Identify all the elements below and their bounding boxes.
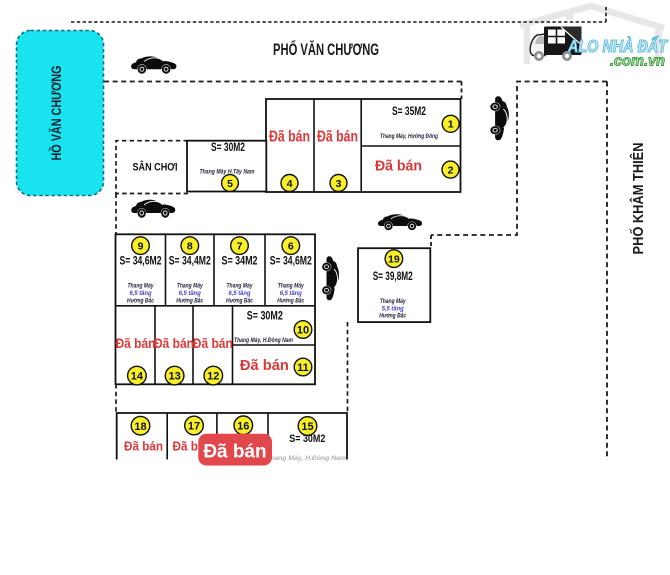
svg-text:S= 30M2: S= 30M2 xyxy=(247,311,283,323)
svg-text:Hướng Bắc: Hướng Bắc xyxy=(127,296,154,305)
svg-text:Đã bán: Đã bán xyxy=(269,129,310,146)
svg-text:Đã bán: Đã bán xyxy=(116,336,156,351)
svg-text:15: 15 xyxy=(301,421,313,433)
svg-text:1: 1 xyxy=(448,119,454,131)
svg-text:Thang Máy: Thang Máy xyxy=(278,283,304,290)
svg-text:Đã bán: Đã bán xyxy=(317,129,358,146)
svg-text:10: 10 xyxy=(297,325,309,337)
svg-text:Hướng Bắc: Hướng Bắc xyxy=(277,296,304,305)
svg-text:6: 6 xyxy=(288,240,294,252)
svg-text:HỒ VĂN CHƯƠNG: HỒ VĂN CHƯƠNG xyxy=(47,65,64,160)
svg-text:8: 8 xyxy=(187,240,193,252)
svg-text:Thang Máy: Thang Máy xyxy=(128,283,154,290)
svg-text:6,5 tầng: 6,5 tầng xyxy=(130,288,152,297)
svg-text:Thang Máy: Thang Máy xyxy=(227,283,253,290)
svg-text:3: 3 xyxy=(336,178,342,190)
svg-text:Hướng Bắc: Hướng Bắc xyxy=(379,311,406,320)
svg-text:Hướng Bắc: Hướng Bắc xyxy=(176,296,203,305)
svg-text:2: 2 xyxy=(448,165,454,177)
svg-text:Thang Máy: Thang Máy xyxy=(177,283,203,290)
svg-text:SÂN CHƠI: SÂN CHƠI xyxy=(133,161,178,174)
svg-text:Đã bán: Đã bán xyxy=(193,336,233,351)
svg-text:S= 39,8M2: S= 39,8M2 xyxy=(373,271,413,283)
svg-text:Thang Máy, Hướng Đông: Thang Máy, Hướng Đông xyxy=(380,133,438,140)
svg-text:Hướng Bắc: Hướng Bắc xyxy=(226,296,253,305)
svg-text:S= 35M2: S= 35M2 xyxy=(392,106,426,118)
svg-text:Thang Máy: Thang Máy xyxy=(380,298,406,305)
svg-text:S= 34,4M2: S= 34,4M2 xyxy=(169,256,211,268)
svg-text:9: 9 xyxy=(138,240,144,252)
svg-text:S= 34M2: S= 34M2 xyxy=(222,256,258,268)
svg-text:11: 11 xyxy=(297,362,309,374)
svg-text:Đã bán: Đã bán xyxy=(375,158,422,175)
svg-text:13: 13 xyxy=(168,371,180,383)
svg-text:7: 7 xyxy=(237,240,243,252)
svg-text:S= 34,6M2: S= 34,6M2 xyxy=(120,256,162,268)
svg-text:S= 34,6M2: S= 34,6M2 xyxy=(270,256,312,268)
svg-text:Đã bán: Đã bán xyxy=(203,442,266,463)
svg-text:6,5 tầng: 6,5 tầng xyxy=(229,288,251,297)
svg-text:5,5 tầng: 5,5 tầng xyxy=(382,303,404,312)
svg-text:Đã bán: Đã bán xyxy=(154,336,194,351)
svg-text:S= 30M2: S= 30M2 xyxy=(211,142,245,154)
svg-text:18: 18 xyxy=(134,421,146,433)
svg-text:Thang Máy, H.Đông Nam: Thang Máy, H.Đông Nam xyxy=(266,455,346,462)
svg-text:12: 12 xyxy=(207,371,219,383)
svg-text:.com.vn: .com.vn xyxy=(610,53,665,70)
svg-text:Đã bán: Đã bán xyxy=(240,357,289,374)
svg-text:19: 19 xyxy=(388,254,400,266)
svg-text:6,5 tầng: 6,5 tầng xyxy=(179,288,201,297)
svg-text:17: 17 xyxy=(188,421,200,433)
svg-text:14: 14 xyxy=(131,371,144,383)
svg-text:5: 5 xyxy=(227,178,233,190)
svg-text:PHỐ VĂN CHƯƠNG: PHỐ VĂN CHƯƠNG xyxy=(273,39,379,59)
svg-text:S= 30M2: S= 30M2 xyxy=(289,433,325,445)
svg-text:Thang Máy, H.Đông Nam: Thang Máy, H.Đông Nam xyxy=(234,337,293,344)
svg-text:16: 16 xyxy=(237,420,249,432)
svg-text:6,5 tầng: 6,5 tầng xyxy=(280,288,302,297)
svg-text:Đã bán: Đã bán xyxy=(124,439,163,454)
svg-text:PHỐ KHÂM THIÊN: PHỐ KHÂM THIÊN xyxy=(629,143,647,255)
svg-text:4: 4 xyxy=(287,178,293,190)
